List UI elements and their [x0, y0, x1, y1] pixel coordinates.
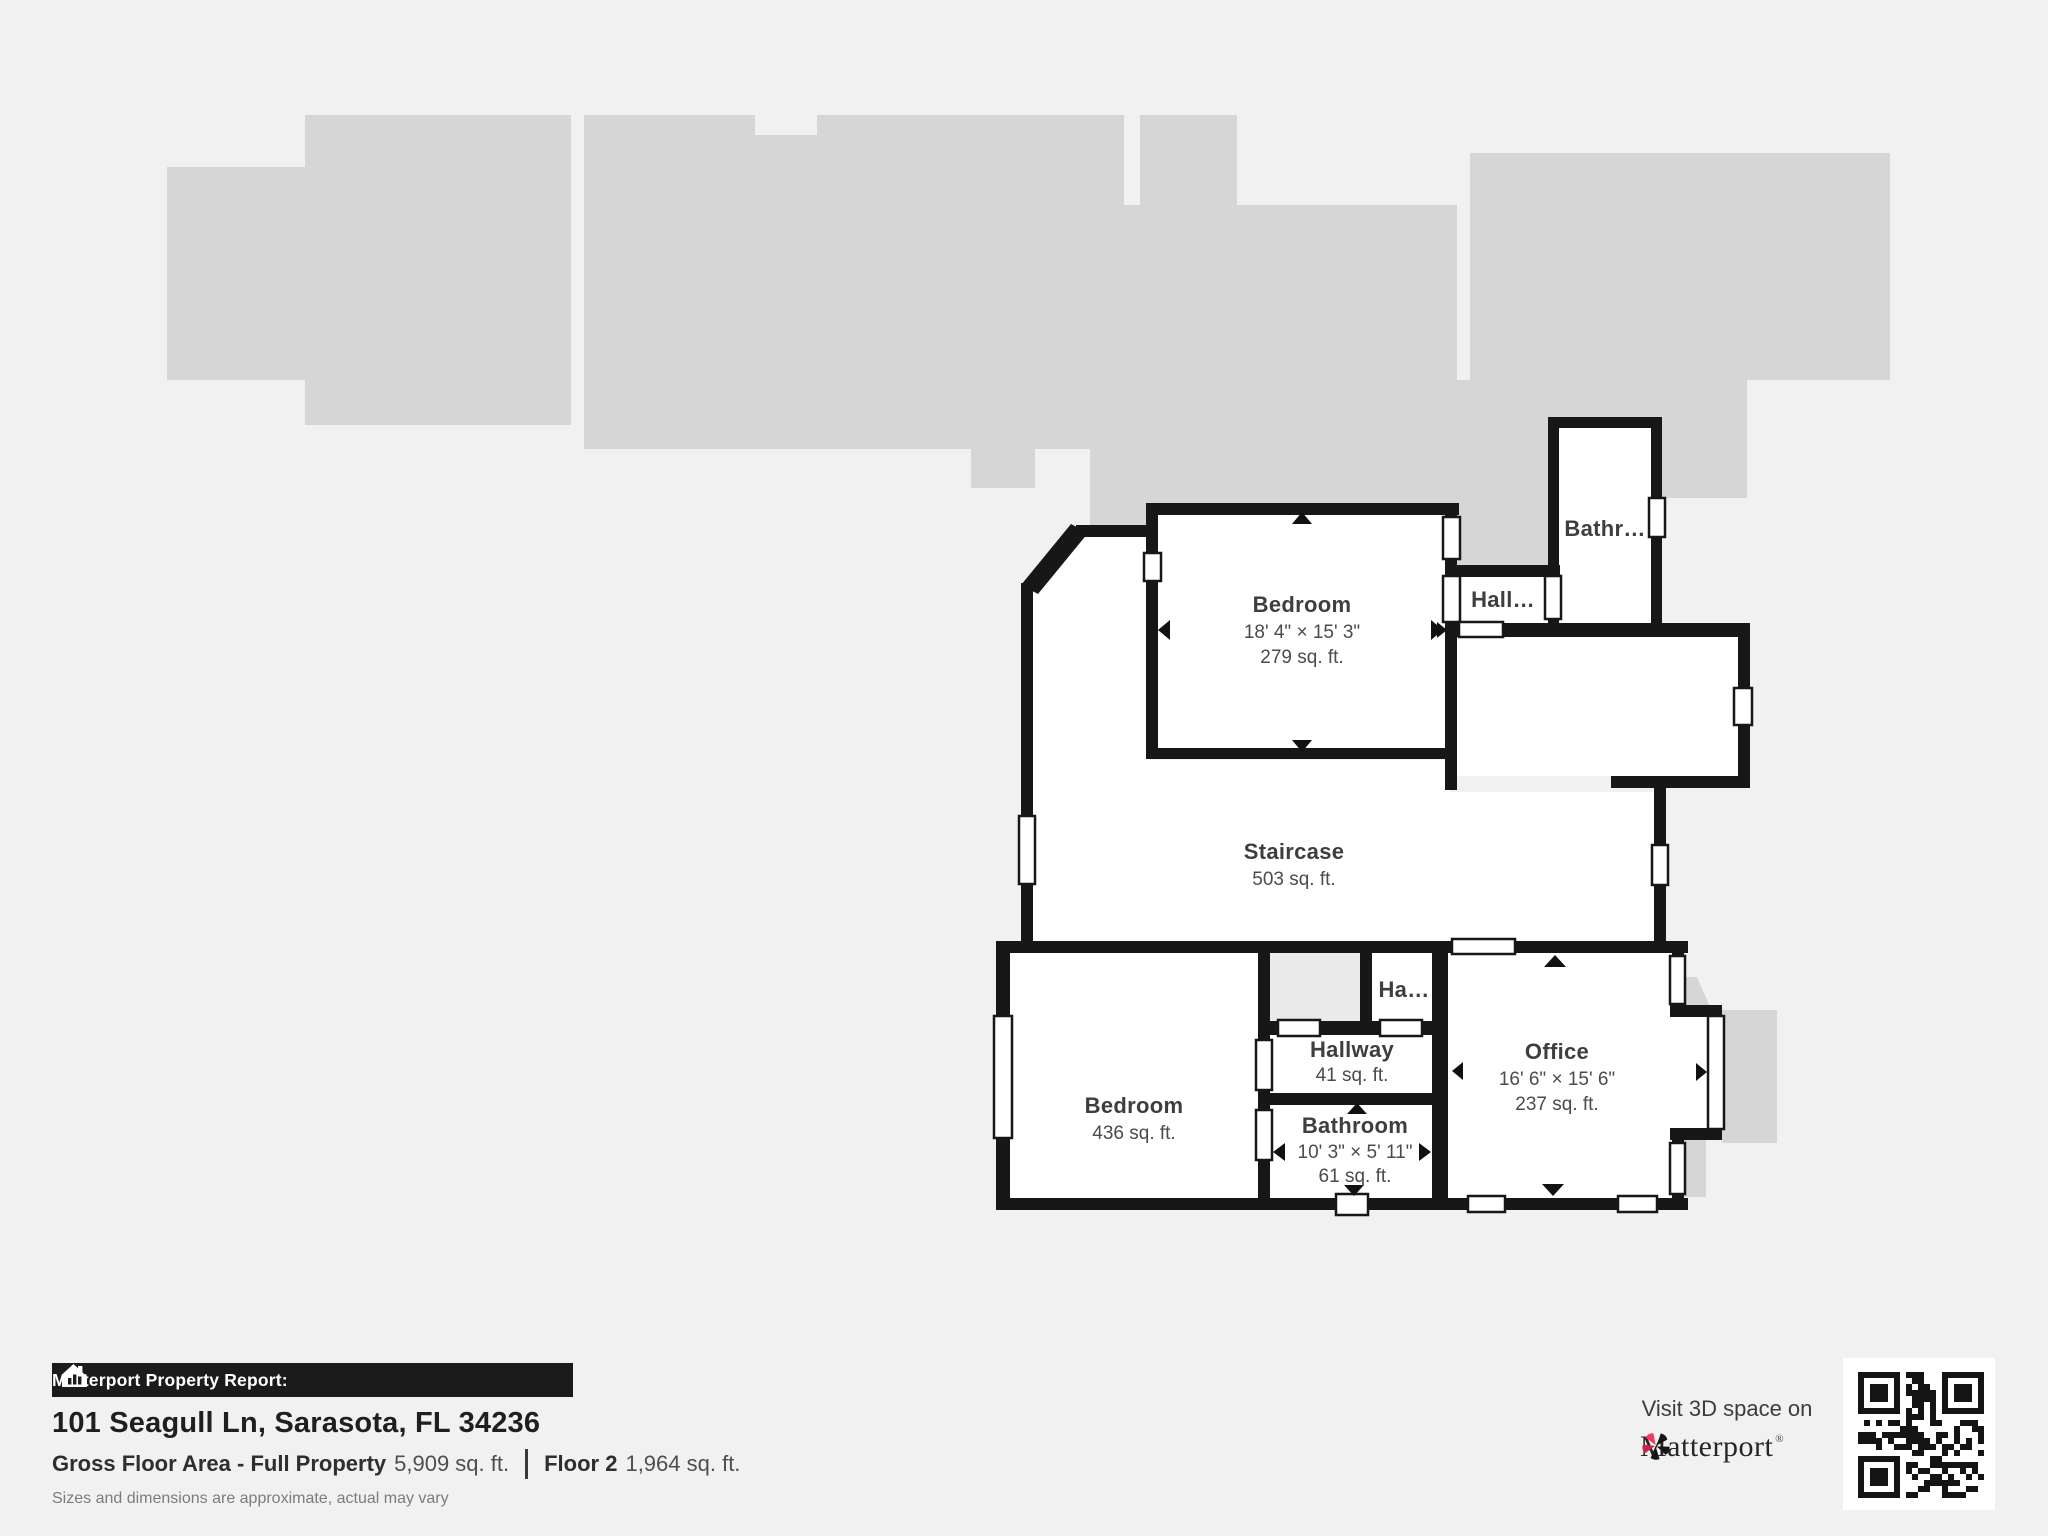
hall-upper-interior [1457, 577, 1548, 623]
door-opening [1278, 1020, 1320, 1036]
window [994, 1016, 1012, 1138]
bedroom-lower-interior [1008, 953, 1260, 1198]
floor-value: 1,964 sq. ft. [625, 1451, 740, 1477]
report-title-bar: Matterport Property Report: [52, 1363, 573, 1397]
window [1618, 1196, 1657, 1212]
gross-area-value: 5,909 sq. ft. [394, 1451, 509, 1477]
floorplan-canvas [0, 0, 2048, 1536]
upper-right-room-interior [1457, 637, 1738, 776]
window [1443, 517, 1460, 559]
door [1256, 1040, 1272, 1090]
hall-small-interior [1370, 953, 1434, 1023]
window [1670, 1143, 1685, 1194]
house-chart-icon [61, 1363, 88, 1388]
hallway-interior [1268, 1033, 1434, 1095]
floorplan-page: Bedroom 18' 4" × 15' 3" 279 sq. ft. Stai… [0, 0, 2048, 1536]
floor-label: Floor 2 [544, 1451, 617, 1477]
disclaimer: Sizes and dimensions are approximate, ac… [52, 1490, 449, 1508]
window [1468, 1196, 1505, 1212]
door-opening [1459, 622, 1503, 637]
property-address: 101 Seagull Ln, Sarasota, FL 34236 [52, 1407, 540, 1440]
qr-code [1843, 1358, 1995, 1510]
bathroom-upper-interior [1554, 428, 1656, 629]
matterport-pinwheel-icon [1640, 1430, 1672, 1462]
bedroom-upper-interior [1152, 509, 1451, 754]
window [1670, 956, 1685, 1004]
window [1708, 1016, 1724, 1129]
window [1734, 688, 1752, 725]
door-opening [1380, 1020, 1422, 1036]
visit-3d-text: Visit 3D space on [1642, 1396, 1813, 1422]
door [1649, 498, 1665, 537]
floor-area-summary: Gross Floor Area - Full Property 5,909 s… [52, 1449, 740, 1479]
door [1443, 576, 1460, 622]
matterport-logo: Matterport® [1640, 1430, 1784, 1464]
door [1256, 1110, 1272, 1160]
door [1545, 576, 1561, 619]
open-notch [1270, 953, 1360, 1023]
door-opening [1452, 939, 1515, 954]
window [1019, 816, 1035, 884]
room-interiors [1008, 428, 1738, 1200]
gross-area-label: Gross Floor Area - Full Property [52, 1451, 386, 1477]
window [1144, 553, 1161, 581]
window [1652, 845, 1668, 885]
separator [525, 1449, 528, 1479]
door [1336, 1194, 1368, 1215]
